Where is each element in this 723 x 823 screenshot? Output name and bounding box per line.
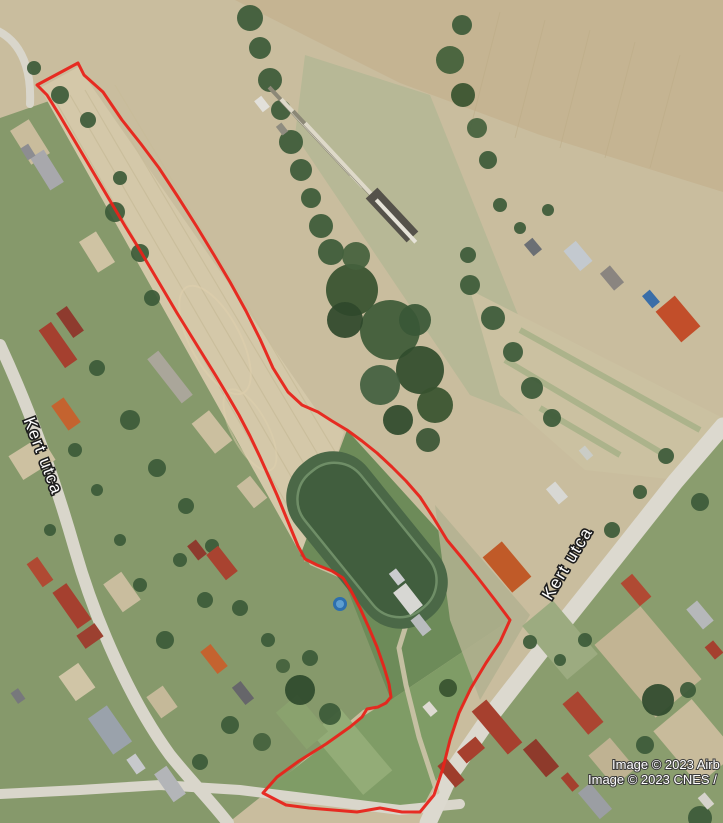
- tree: [439, 679, 457, 697]
- tree: [467, 118, 487, 138]
- tree: [633, 485, 647, 499]
- tree: [309, 214, 333, 238]
- tree: [120, 410, 140, 430]
- tree: [44, 524, 56, 536]
- tree: [523, 635, 537, 649]
- tree: [68, 443, 82, 457]
- tree: [91, 484, 103, 496]
- tree: [27, 61, 41, 75]
- tree: [554, 654, 566, 666]
- tree: [197, 592, 213, 608]
- tree: [436, 46, 464, 74]
- tree: [360, 365, 400, 405]
- tree: [80, 112, 96, 128]
- tree: [383, 405, 413, 435]
- tree: [156, 631, 174, 649]
- tree: [514, 222, 526, 234]
- tree: [578, 633, 592, 647]
- tree: [290, 159, 312, 181]
- tree: [89, 360, 105, 376]
- tree: [302, 650, 318, 666]
- tree: [636, 736, 654, 754]
- tree: [658, 448, 674, 464]
- attribution-line-1: Image © 2023 Airb: [612, 757, 720, 772]
- swimming-pool-center: [336, 600, 344, 608]
- tree: [680, 682, 696, 698]
- tree: [416, 428, 440, 452]
- tree: [642, 684, 674, 716]
- tree: [221, 716, 239, 734]
- tree: [452, 15, 472, 35]
- tree: [173, 553, 187, 567]
- tree: [192, 754, 208, 770]
- tree: [604, 522, 620, 538]
- tree: [261, 633, 275, 647]
- tree: [113, 171, 127, 185]
- tree: [691, 493, 709, 511]
- tree: [232, 600, 248, 616]
- tree: [479, 151, 497, 169]
- tree: [460, 275, 480, 295]
- tree: [285, 675, 315, 705]
- tree: [178, 498, 194, 514]
- tree: [399, 304, 431, 336]
- satellite-map[interactable]: Kert utca Kert utca Image © 2023 Airb Im…: [0, 0, 723, 823]
- tree: [342, 242, 370, 270]
- tree: [493, 198, 507, 212]
- tree: [253, 733, 271, 751]
- tree: [249, 37, 271, 59]
- tree: [276, 659, 290, 673]
- tree: [133, 578, 147, 592]
- tree: [503, 342, 523, 362]
- tree: [114, 534, 126, 546]
- tree: [417, 387, 453, 423]
- tree: [543, 409, 561, 427]
- tree: [327, 302, 363, 338]
- tree: [301, 188, 321, 208]
- tree: [237, 5, 263, 31]
- tree: [521, 377, 543, 399]
- attribution-line-2: Image © 2023 CNES /: [588, 772, 717, 787]
- tree: [319, 703, 341, 725]
- tree: [542, 204, 554, 216]
- tree: [144, 290, 160, 306]
- tree: [51, 86, 69, 104]
- tree: [396, 346, 444, 394]
- tree: [460, 247, 476, 263]
- tree: [318, 239, 344, 265]
- tree: [481, 306, 505, 330]
- tree: [148, 459, 166, 477]
- tree: [451, 83, 475, 107]
